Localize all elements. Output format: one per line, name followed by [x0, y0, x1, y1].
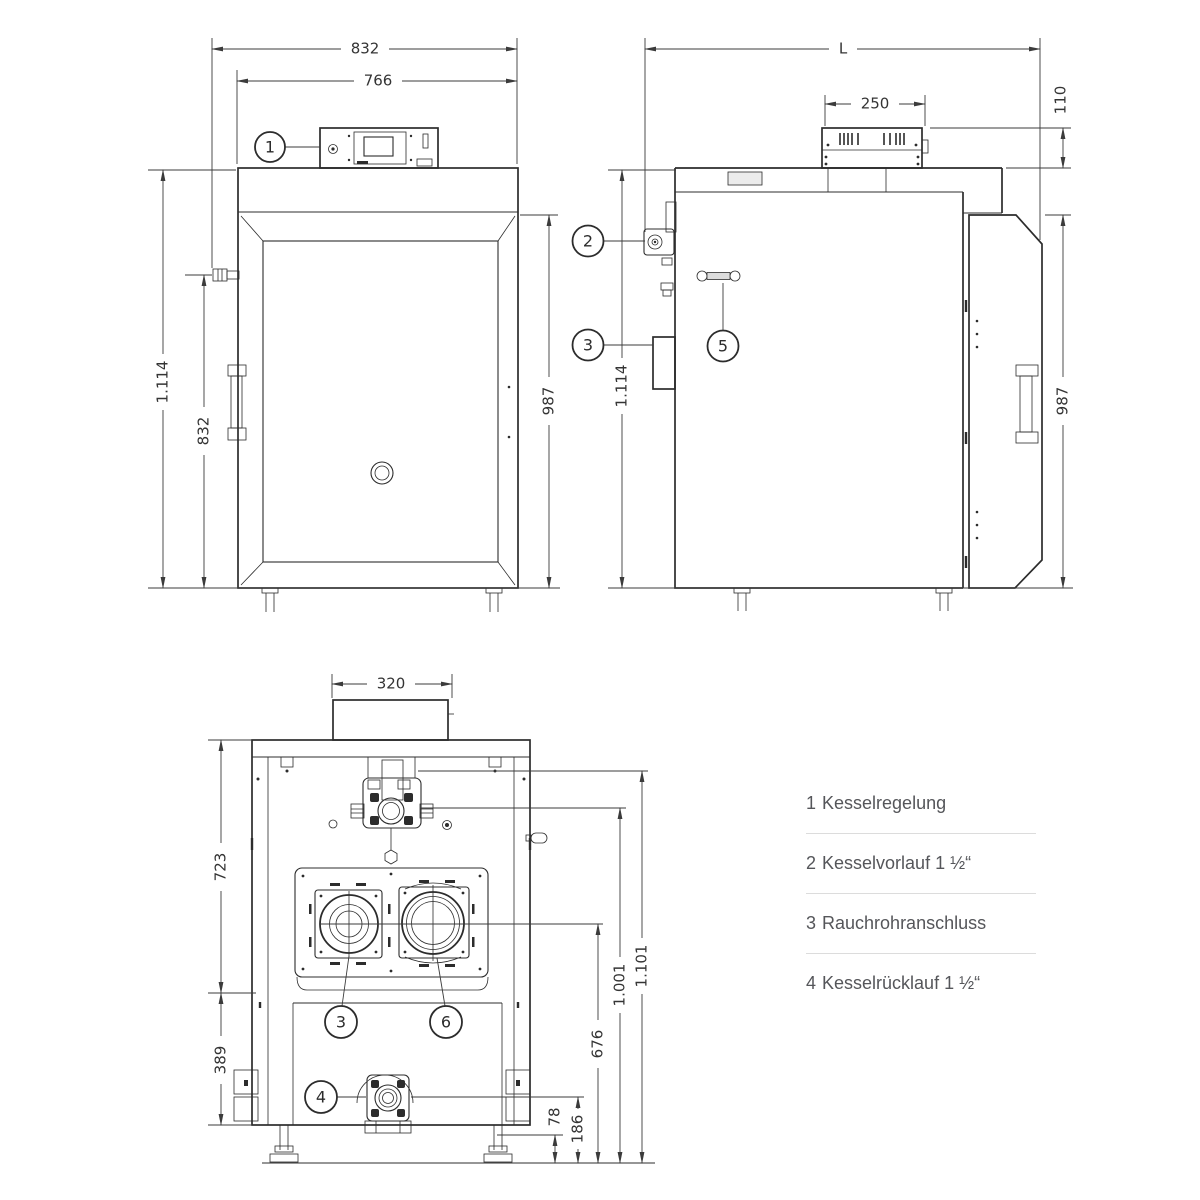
front-feet	[262, 588, 502, 612]
callout-handle: 5	[708, 331, 739, 362]
callout-number: 4	[316, 1088, 326, 1107]
legend-label: Kesselvorlauf 1 ½“	[822, 853, 971, 873]
dim-rear-conn-top: 1.101	[633, 945, 651, 988]
dim-rear-ruecklauf-low: 78	[546, 1107, 564, 1126]
side-feet	[734, 588, 952, 611]
front-side-stub	[213, 269, 239, 281]
front-view: 1 832 766 1.114 832 987	[148, 38, 560, 612]
legend-number: 1	[806, 793, 816, 813]
legend-number: 2	[806, 853, 816, 873]
side-door-outline	[969, 215, 1042, 588]
rear-duct	[333, 700, 448, 740]
callout-kesselvorlauf: 2	[573, 226, 604, 257]
dim-rear-height-lower: 389	[212, 1046, 230, 1075]
front-door-knob	[371, 462, 393, 484]
dim-front-height-door: 987	[540, 387, 558, 416]
control-display	[364, 137, 393, 156]
legend-label: Kesselrücklauf 1 ½“	[822, 973, 980, 993]
callout-kesselruecklauf: 4	[305, 1081, 337, 1113]
dim-side-panel-height: 110	[1052, 86, 1070, 115]
vorlauf-connection-rear	[351, 757, 433, 864]
dim-front-height-side: 832	[195, 417, 213, 446]
front-door-panel	[263, 241, 498, 562]
flue-duct-side	[653, 337, 675, 389]
legend-item-2: 2Kesselvorlauf 1 ½“	[806, 834, 1036, 894]
dim-front-width-outer: 832	[351, 40, 380, 58]
rear-hinge-tabs	[234, 1070, 530, 1121]
legend-label: Rauchrohranschluss	[822, 913, 986, 933]
dim-side-height-total: 1.114	[613, 365, 631, 408]
legend-item-1: 1Kesselregelung	[806, 774, 1036, 834]
legend-label: Kesselregelung	[822, 793, 946, 813]
lid-handle	[697, 271, 740, 281]
dim-front-height-total: 1.114	[154, 361, 172, 404]
callout-rauchrohr-side: 3	[573, 330, 604, 361]
side-door-handle	[1016, 365, 1038, 443]
callout-number: 2	[583, 232, 593, 251]
drawing-canvas: 1 832 766 1.114 832 987	[0, 0, 1200, 1200]
legend-number: 3	[806, 913, 816, 933]
boiler-dimension-drawing: 1 832 766 1.114 832 987	[0, 0, 1200, 1200]
front-door-handle	[228, 365, 246, 440]
side-view: 2 3 5 L 250 110 1.114 987	[573, 38, 1074, 611]
callout-rauchrohr-rear: 3	[325, 1006, 357, 1038]
dim-rear-flue-center: 676	[589, 1030, 607, 1059]
dim-side-panel-width: 250	[861, 95, 890, 113]
rear-view: 3 6 4 320 723 389 78 186	[208, 673, 655, 1163]
callout-opening-6: 6	[430, 1006, 462, 1038]
callout-number: 3	[336, 1013, 346, 1032]
legend-number: 4	[806, 973, 816, 993]
callout-number: 3	[583, 336, 593, 355]
dim-rear-height-upper: 723	[212, 853, 230, 882]
flue-plate	[295, 868, 488, 990]
rear-feet	[270, 1125, 512, 1162]
side-body-outline	[675, 168, 1002, 588]
dim-rear-ruecklauf-center: 186	[569, 1115, 587, 1144]
vent-slots	[840, 133, 904, 145]
callout-number: 6	[441, 1013, 451, 1032]
legend-item-3: 3Rauchrohranschluss	[806, 894, 1036, 954]
dim-side-length: L	[839, 40, 848, 58]
vorlauf-fitting-side	[644, 202, 676, 296]
dim-rear-conn-upper: 1.001	[611, 964, 629, 1007]
dim-side-height-door: 987	[1054, 387, 1072, 416]
boiler-control-panel	[320, 128, 438, 168]
type-plate	[728, 172, 762, 185]
legend-item-4: 4Kesselrücklauf 1 ½“	[806, 954, 1036, 1013]
callout-number: 5	[718, 337, 728, 356]
control-panel-side	[822, 128, 928, 168]
front-body-outline	[238, 168, 518, 588]
dim-rear-duct-width: 320	[377, 675, 406, 693]
dim-front-width-inner: 766	[364, 72, 393, 90]
legend: 1Kesselregelung 2Kesselvorlauf 1 ½“ 3Rau…	[806, 774, 1036, 1013]
callout-kesselregelung: 1	[255, 132, 285, 162]
callout-number: 1	[265, 138, 275, 157]
